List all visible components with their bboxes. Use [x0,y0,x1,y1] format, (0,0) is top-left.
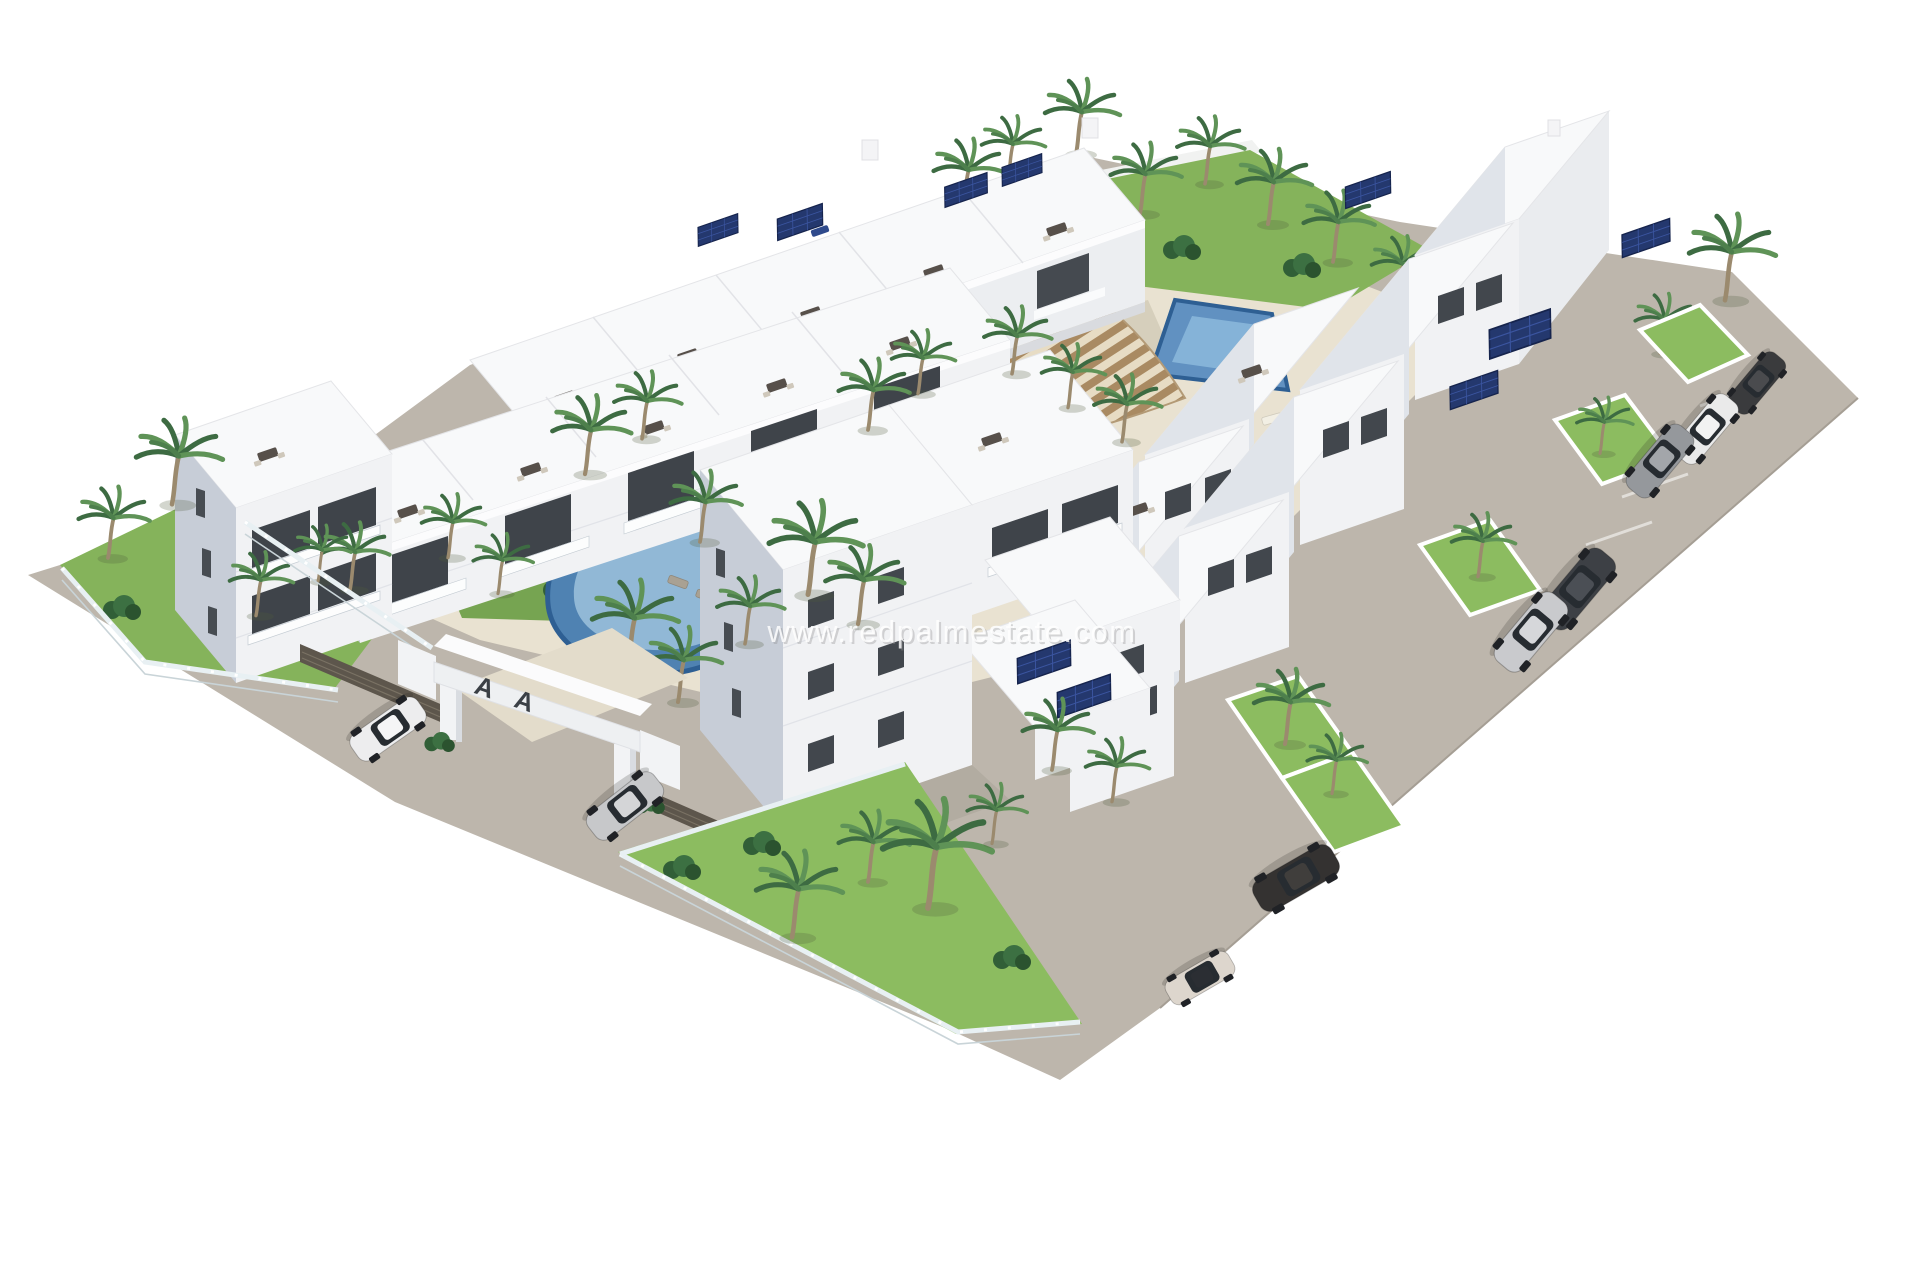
chimney [1548,120,1560,136]
chimney [862,140,878,160]
gate-pillar-side [456,684,462,742]
render-image: A A [0,0,1920,1280]
watermark-text: www.redpalmestate.com [766,614,1136,649]
gate-pillar [440,682,456,740]
watermark: www.redpalmestate.com www.redpalmestate.… [766,614,1138,651]
chimney [1082,118,1098,138]
scene-svg: A A [0,0,1920,1280]
